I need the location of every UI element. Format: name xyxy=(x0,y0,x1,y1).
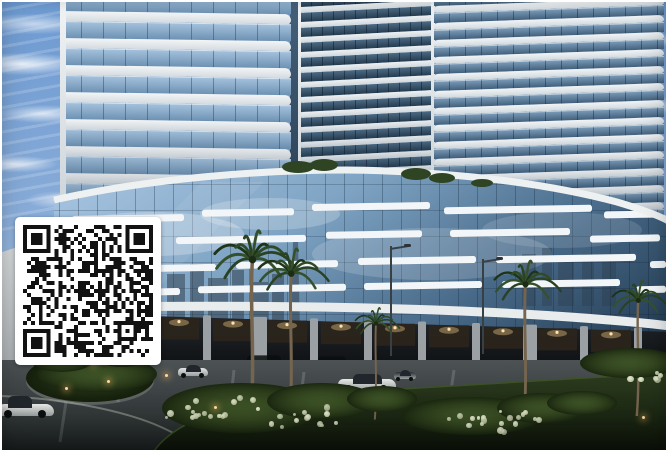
flower-cluster xyxy=(499,421,504,426)
path-light xyxy=(107,380,110,383)
flower-cluster xyxy=(294,418,299,423)
flower-cluster xyxy=(256,407,260,411)
flower-cluster xyxy=(208,414,213,419)
flower-cluster xyxy=(269,421,274,426)
flower-cluster xyxy=(202,411,206,415)
flower-cluster xyxy=(638,377,643,382)
car-cabin xyxy=(8,396,32,408)
flower-cluster xyxy=(516,415,521,420)
photo-frame xyxy=(0,0,668,452)
path-light xyxy=(165,374,168,377)
flower-cluster xyxy=(627,376,633,382)
flower-cluster xyxy=(513,421,518,426)
bush xyxy=(347,386,417,412)
path-light xyxy=(642,416,645,419)
car-wheel xyxy=(38,410,46,418)
flower-cluster xyxy=(185,405,191,411)
car-wheel xyxy=(4,410,12,418)
flower-cluster xyxy=(193,398,199,404)
flower-cluster xyxy=(470,416,474,420)
flower-cluster xyxy=(324,411,330,417)
flower-cluster xyxy=(521,412,525,416)
car xyxy=(0,396,54,418)
path-light xyxy=(65,387,68,390)
flower-cluster xyxy=(507,415,513,421)
flower-cluster xyxy=(324,404,330,410)
lamp-head-icon xyxy=(404,244,411,247)
qr-module-grid xyxy=(23,225,153,357)
qr-code[interactable] xyxy=(15,217,161,365)
flower-cluster xyxy=(477,416,480,419)
flower-cluster xyxy=(334,421,338,425)
flower-cluster xyxy=(250,397,256,403)
flower-cluster xyxy=(231,399,237,405)
flower-cluster xyxy=(277,414,283,420)
flower-cluster xyxy=(457,413,463,419)
flower-cluster xyxy=(480,422,484,426)
bush xyxy=(547,391,617,415)
path-light xyxy=(214,406,217,409)
